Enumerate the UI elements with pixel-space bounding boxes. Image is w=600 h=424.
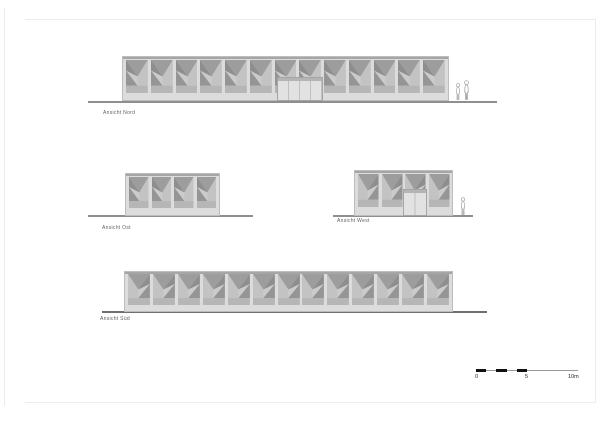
roof-edge xyxy=(126,174,219,176)
folded-window-bay-icon xyxy=(377,274,399,305)
folded-window-bay-icon xyxy=(349,60,371,93)
scale-bar-segment xyxy=(517,369,527,372)
folded-window-bay-icon xyxy=(176,60,198,93)
folded-window-bay-icon xyxy=(250,60,272,93)
folded-window-bay-icon xyxy=(174,177,194,208)
elevation-label-north: Ansicht Nord xyxy=(103,110,135,116)
sheet-frame-top xyxy=(25,19,596,20)
folded-window-bay-icon xyxy=(423,60,445,93)
folded-window-bay-icon xyxy=(278,274,300,305)
scale-bar-blocks xyxy=(476,367,578,373)
door-seams xyxy=(278,81,322,100)
folded-window-bay-icon xyxy=(151,60,173,93)
folded-window-bay-icon xyxy=(200,60,222,93)
entrance-door-north xyxy=(277,77,323,101)
folded-window-bay-icon xyxy=(324,60,346,93)
roof-edge xyxy=(355,171,452,173)
scale-label-5: 5 xyxy=(525,374,528,380)
sheet-frame-bottom xyxy=(25,402,596,403)
folded-window-bay-icon xyxy=(374,60,396,93)
folded-window-bay-icon xyxy=(402,274,424,305)
sheet-frame-left xyxy=(4,8,5,406)
window-bays-east xyxy=(129,177,216,208)
sheet-frame-right xyxy=(595,19,596,403)
folded-window-bay-icon xyxy=(427,274,449,305)
elevation-label-west: Ansicht West xyxy=(337,218,370,224)
folded-window-bay-icon xyxy=(358,174,379,207)
folded-window-bay-icon xyxy=(126,60,148,93)
roof-edge xyxy=(123,57,448,59)
folded-window-bay-icon xyxy=(178,274,200,305)
scale-bar-segment xyxy=(496,369,506,372)
door-seams xyxy=(404,193,426,215)
person-icon xyxy=(462,80,471,101)
ground-line-north xyxy=(88,101,497,103)
window-bays-south xyxy=(128,274,449,305)
folded-window-bay-icon xyxy=(429,174,450,207)
elevation-label-south: Ansicht Süd xyxy=(100,316,130,322)
folded-window-bay-icon xyxy=(153,274,175,305)
folded-window-bay-icon xyxy=(382,174,403,207)
scale-label-0: 0 xyxy=(475,374,478,380)
folded-window-bay-icon xyxy=(228,274,250,305)
folded-window-bay-icon xyxy=(128,274,150,305)
scale-bar: 0 5 10m xyxy=(476,367,588,383)
folded-window-bay-icon xyxy=(398,60,420,93)
folded-window-bay-icon xyxy=(225,60,247,93)
folded-window-bay-icon xyxy=(203,274,225,305)
folded-window-bay-icon xyxy=(352,274,374,305)
person-icon xyxy=(459,197,467,216)
folded-window-bay-icon xyxy=(327,274,349,305)
folded-window-bay-icon xyxy=(197,177,217,208)
folded-window-bay-icon xyxy=(302,274,324,305)
scale-bar-segment xyxy=(476,369,486,372)
folded-window-bay-icon xyxy=(152,177,172,208)
elevation-label-east: Ansicht Ost xyxy=(102,225,131,231)
person-icon xyxy=(454,83,462,101)
folded-window-bay-icon xyxy=(129,177,149,208)
drawing-sheet: Ansicht Nord xyxy=(0,0,600,424)
entrance-door-west xyxy=(403,189,427,216)
scale-label-10m: 10m xyxy=(568,374,579,380)
folded-window-bay-icon xyxy=(253,274,275,305)
